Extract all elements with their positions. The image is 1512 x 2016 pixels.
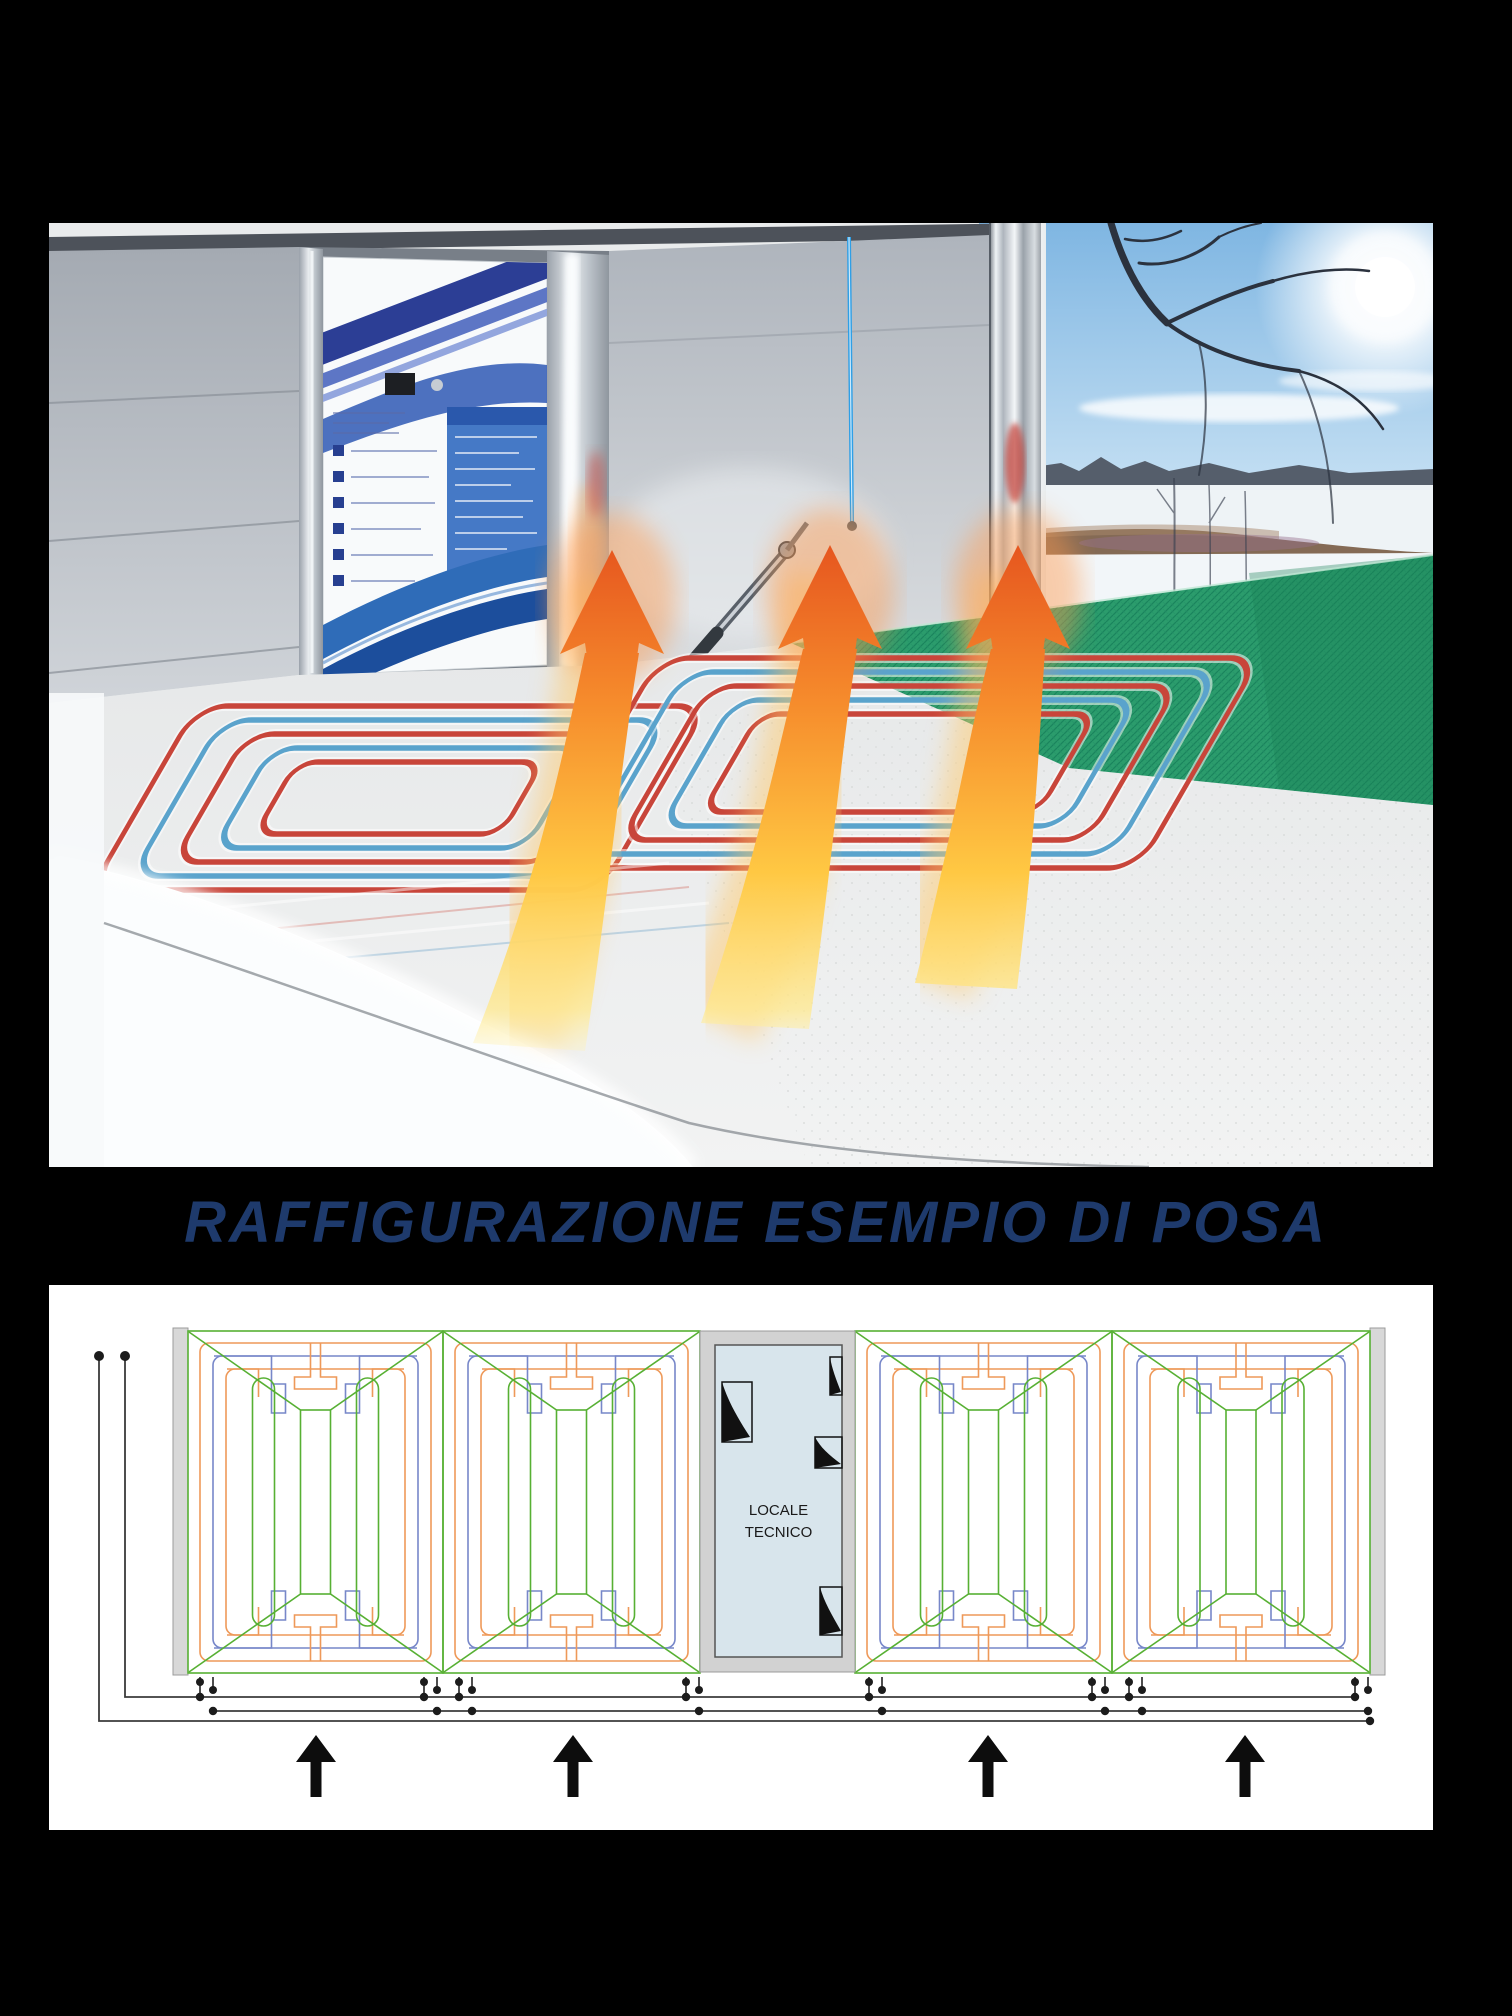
- inlet-arrow-3: [968, 1735, 1008, 1797]
- room-label-line1: LOCALE: [749, 1502, 808, 1519]
- inlet-arrow-2: [553, 1735, 593, 1797]
- heat-arrows: [473, 508, 1082, 1051]
- sun: [1355, 257, 1415, 317]
- heating-panel-1: [188, 1331, 443, 1673]
- left-wall: [49, 247, 299, 703]
- inlet-arrow-4: [1225, 1735, 1265, 1797]
- brochure-page: RAFFIGURAZIONE ESEMPIO DI POSA: [0, 0, 1512, 2016]
- red-reflection: [587, 451, 605, 519]
- heating-panel-3: [855, 1331, 1112, 1673]
- photo-illustration: [49, 223, 1433, 1167]
- cloud: [1079, 394, 1399, 422]
- inlet-arrows: [296, 1735, 1265, 1797]
- technical-room: LOCALE TECNICO: [700, 1331, 855, 1672]
- photo-figure: [49, 223, 1433, 1167]
- page-title: RAFFIGURAZIONE ESEMPIO DI POSA: [0, 1192, 1512, 1254]
- heating-panel-4: [1112, 1331, 1370, 1673]
- room-label-line2: TECNICO: [745, 1524, 813, 1541]
- right-wall: [1370, 1328, 1385, 1675]
- left-wall: [173, 1328, 188, 1675]
- heating-panel-2: [443, 1331, 700, 1673]
- diagram-figure: LOCALE TECNICO: [49, 1285, 1433, 1830]
- inlet-arrow-1: [296, 1735, 336, 1797]
- floor-plan: LOCALE TECNICO: [49, 1285, 1433, 1830]
